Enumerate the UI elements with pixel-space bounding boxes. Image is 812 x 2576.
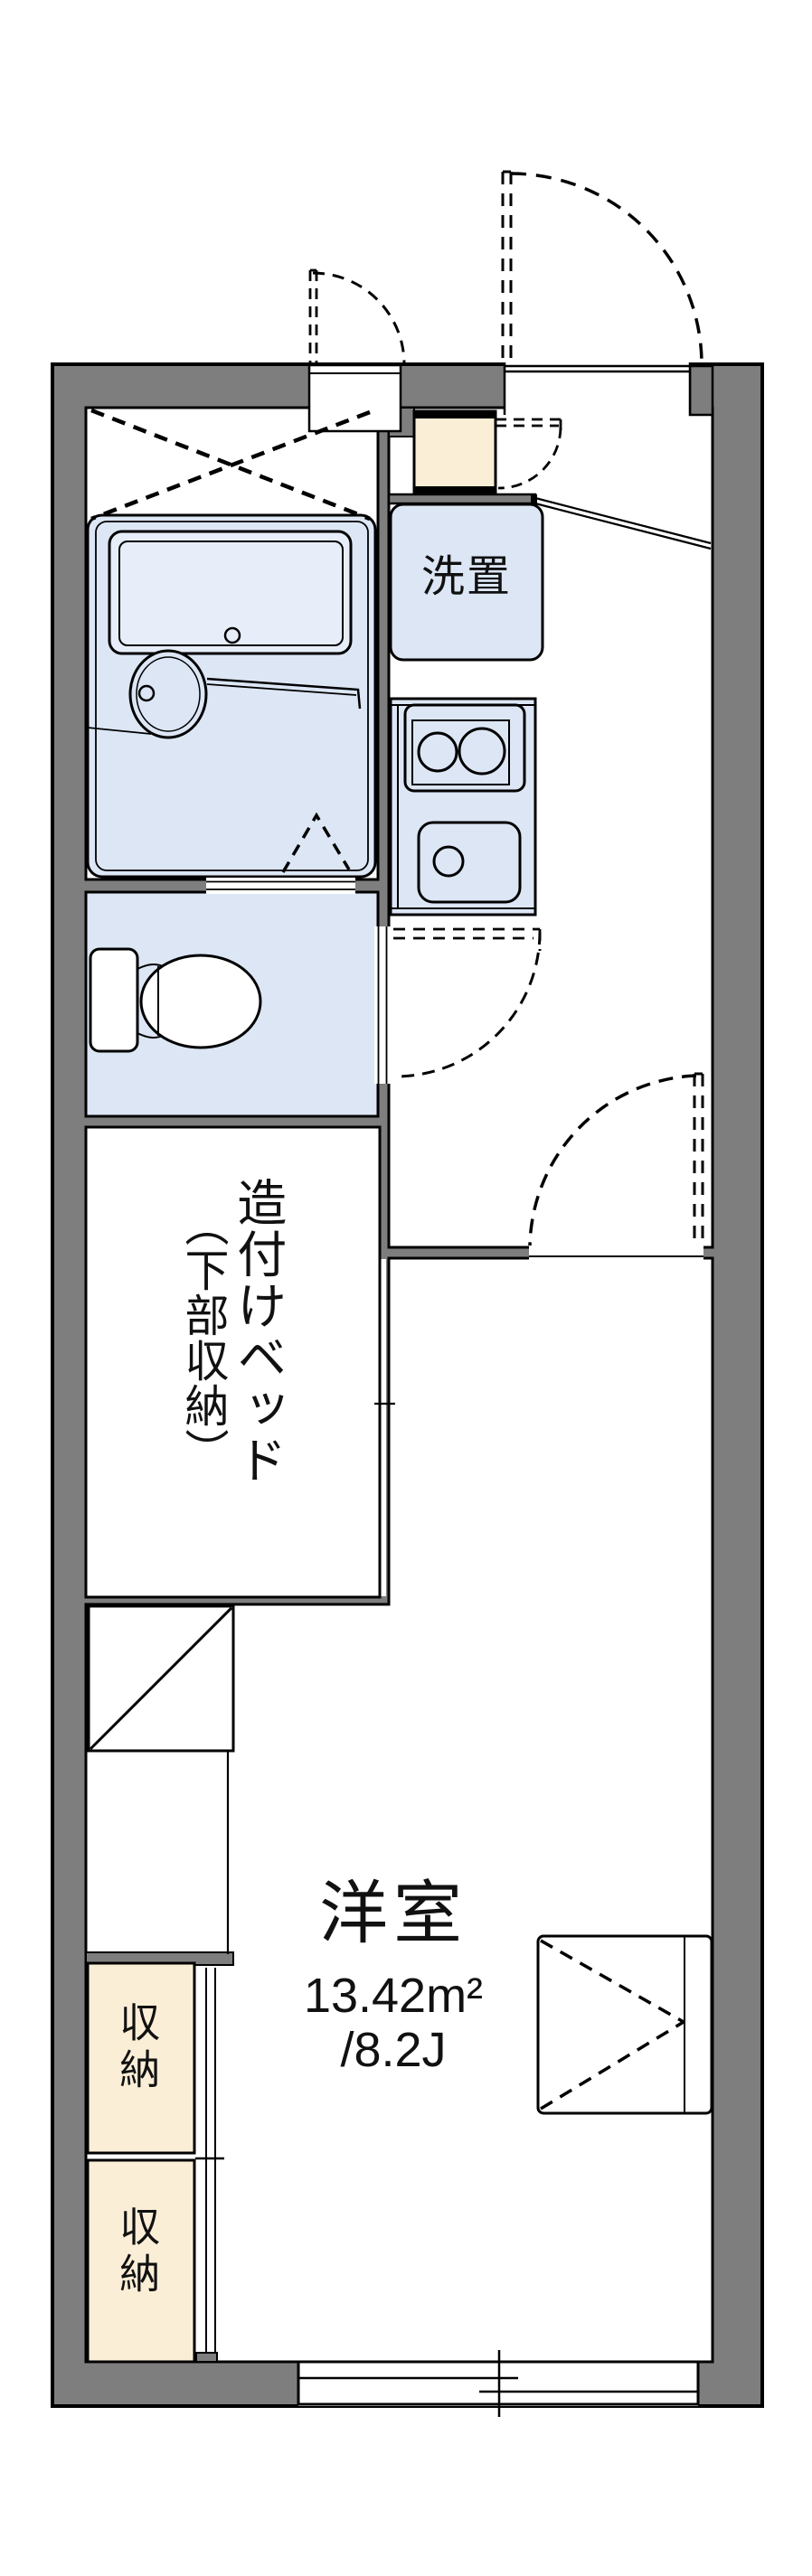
storage-track-notch (196, 2353, 217, 2362)
bathroom-window-niche (309, 365, 401, 431)
room-area-jo-label: /8.2J (86, 2025, 701, 2076)
bathroom-door-opening (206, 878, 355, 894)
shoe-cabinet-bottom-band (414, 486, 496, 492)
room-name-label: 洋室 (86, 1878, 701, 1951)
built-in-bed-label: 造付けベッド (231, 1177, 283, 1486)
laundry-top-wall (389, 494, 535, 503)
toilet-door-opening (374, 926, 392, 1084)
laundry-label: 洗置 (391, 555, 543, 600)
floor-plan-drawing (0, 0, 812, 2576)
room-area-sqm-label: 13.42m² (86, 1970, 701, 2022)
entrance-door-arc (511, 174, 702, 364)
bathtub (109, 531, 351, 653)
bathroom-window-arc (313, 273, 404, 364)
washbasin (130, 651, 206, 738)
shoe-cabinet (414, 411, 496, 493)
storage-upper-label: 収納 (115, 2001, 157, 2095)
storage-lower-label: 収納 (115, 2205, 157, 2299)
genkan-step-tick (531, 494, 537, 503)
under-bed-storage-label: （下部収納） (179, 1202, 225, 1473)
bathroom-window-leaf (310, 270, 316, 363)
shoe-cabinet-top-band (414, 411, 496, 418)
floor-plan: 洗置 造付けベッド （下部収納） 洋室 13.42m² /8.2J 収納 収納 (0, 0, 812, 2576)
toilet-tank (90, 949, 137, 1051)
entrance-opening (505, 362, 690, 415)
entry-right-wall-block (690, 366, 713, 415)
entrance-door-leaf (503, 172, 511, 363)
bed-living-divider-gap (382, 1259, 387, 1596)
living-door-opening (529, 1246, 703, 1260)
